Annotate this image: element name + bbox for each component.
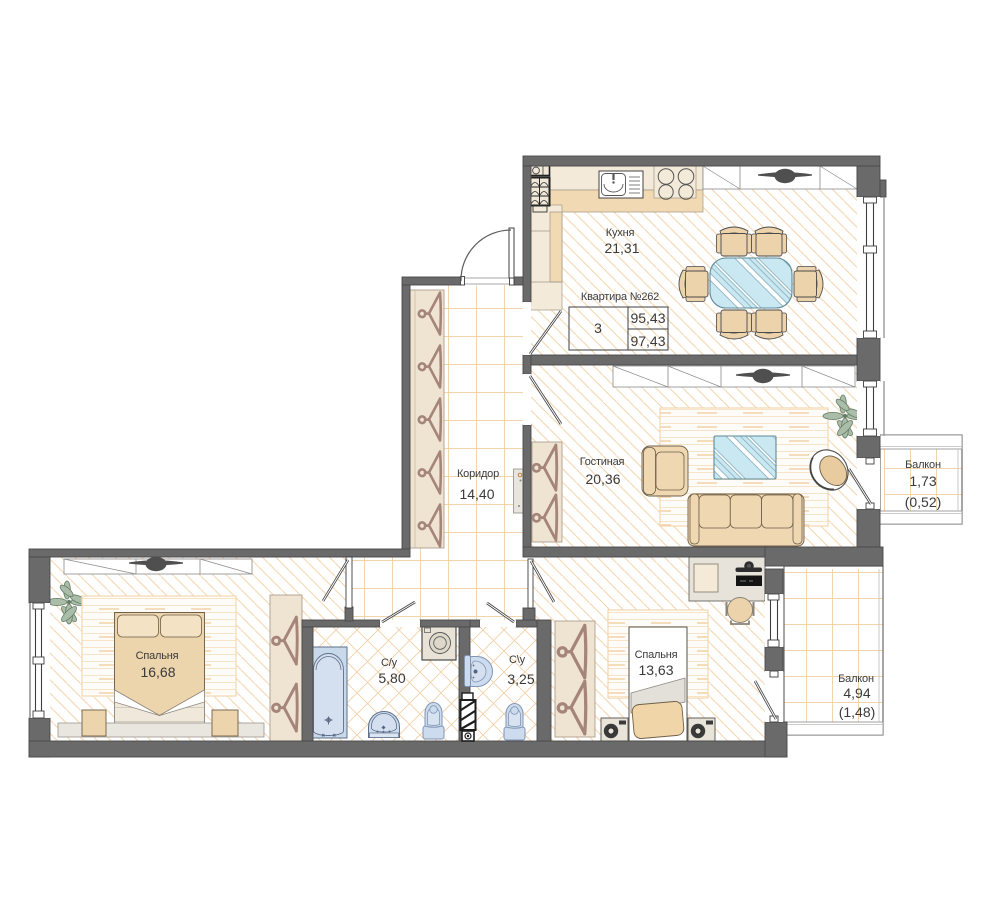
svg-text:97,43: 97,43 <box>630 333 665 349</box>
svg-text:3,25: 3,25 <box>507 671 534 687</box>
svg-text:21,31: 21,31 <box>604 240 639 256</box>
svg-text:(1,48): (1,48) <box>839 704 876 720</box>
svg-text:5,80: 5,80 <box>378 670 405 686</box>
svg-text:Спальня: Спальня <box>136 650 179 662</box>
svg-text:Квартира №262: Квартира №262 <box>581 291 659 303</box>
svg-text:95,43: 95,43 <box>630 310 665 326</box>
svg-text:Спальня: Спальня <box>635 649 678 661</box>
svg-text:Коридор: Коридор <box>457 468 499 480</box>
svg-text:(0,52): (0,52) <box>905 494 942 510</box>
svg-text:20,36: 20,36 <box>585 471 620 487</box>
svg-text:13,63: 13,63 <box>638 662 673 678</box>
svg-text:1,73: 1,73 <box>909 473 936 489</box>
svg-text:4,94: 4,94 <box>843 685 870 701</box>
svg-text:16,68: 16,68 <box>140 664 175 680</box>
svg-text:C\у: C\у <box>509 654 526 666</box>
svg-text:Балкон: Балкон <box>838 673 874 685</box>
svg-text:Балкон: Балкон <box>905 459 941 471</box>
svg-text:14,40: 14,40 <box>459 486 494 502</box>
svg-text:Гостиная: Гостиная <box>580 456 625 468</box>
svg-text:3: 3 <box>594 320 602 336</box>
svg-text:С/у: С/у <box>381 657 398 669</box>
svg-text:Кухня: Кухня <box>606 227 635 239</box>
